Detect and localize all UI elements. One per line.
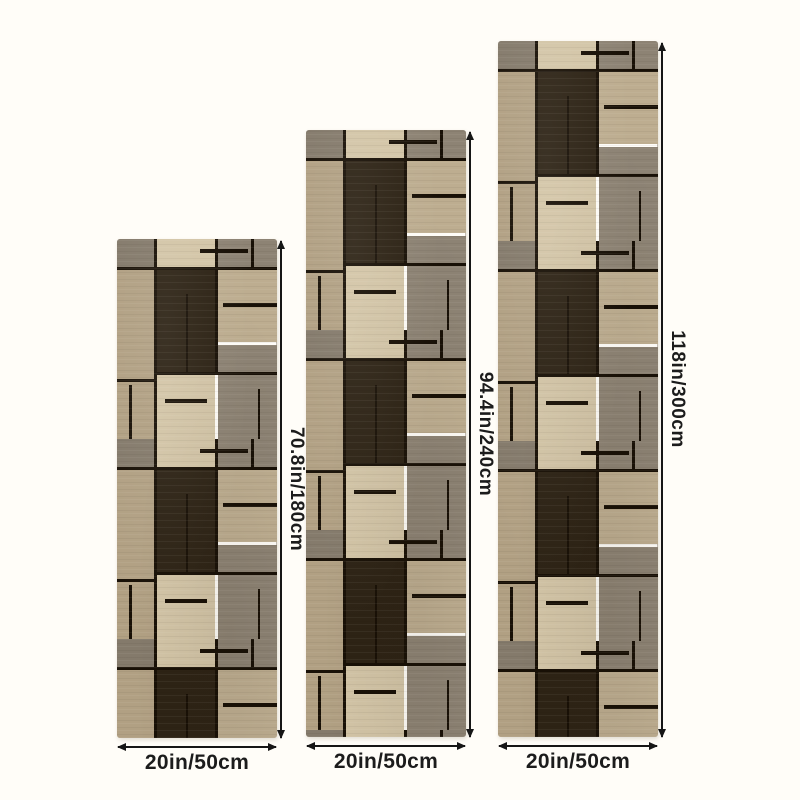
rug-large-height-label: 118in/300cm	[666, 330, 688, 447]
rug-pattern-line	[251, 239, 253, 267]
rug-pattern-line	[186, 294, 188, 374]
width-dimension-line	[499, 745, 657, 747]
rug-pattern-line	[440, 730, 442, 737]
rug-pattern-line	[404, 130, 407, 266]
rug-pattern-block	[306, 530, 343, 558]
rug-pattern-line	[215, 639, 218, 738]
rug-pattern-block	[599, 547, 658, 641]
rug-pattern-block	[306, 161, 343, 330]
rug-pattern-line	[498, 581, 535, 584]
rug-pattern-line	[632, 41, 634, 69]
rug-pattern-line	[318, 476, 321, 530]
arrowhead-left-icon	[117, 743, 126, 751]
rug-pattern-block	[407, 236, 466, 330]
rug-pattern-line	[404, 330, 407, 466]
rug-group-large: 118in/300cm 20in/50cm	[498, 41, 658, 737]
rug-pattern-line	[318, 676, 321, 730]
rug-pattern-line	[604, 305, 658, 309]
rug-pattern-line	[258, 589, 261, 639]
rug-pattern-line	[535, 641, 538, 737]
rug-pattern-line	[154, 439, 157, 639]
rug-pattern-line	[604, 705, 658, 709]
rug-pattern-line	[200, 249, 248, 253]
rug-pattern-block	[498, 241, 535, 269]
rug-pattern-line	[567, 96, 569, 176]
rug-small-width-label: 20in/50cm	[117, 751, 277, 775]
rug-pattern-line	[404, 730, 407, 737]
rug-pattern-line	[186, 694, 188, 738]
rug-pattern-line	[129, 585, 132, 639]
arrowhead-down-icon	[658, 729, 666, 738]
rug-pattern-line	[632, 641, 634, 669]
rug-medium-height-dimension: 94.4in/240cm	[466, 130, 496, 737]
rug-pattern-block	[117, 639, 154, 667]
rug-pattern-line	[447, 680, 450, 730]
rug-large-height-dimension: 118in/300cm	[658, 41, 688, 737]
rug-pattern-line	[318, 276, 321, 330]
rug-pattern-line	[343, 530, 346, 730]
rug-pattern-line	[389, 140, 437, 144]
rug-pattern-line	[375, 185, 377, 265]
arrowhead-down-icon	[277, 730, 285, 739]
rug-pattern-line	[581, 251, 629, 255]
rug-pattern-line	[117, 579, 154, 582]
rug-group-medium: 94.4in/240cm 20in/50cm	[306, 130, 466, 737]
arrowhead-right-icon	[649, 742, 658, 750]
rug-pattern-line	[447, 480, 450, 530]
rug-pattern-block	[538, 241, 596, 269]
rug-pattern-line	[306, 270, 343, 273]
rug-pattern-line	[567, 496, 569, 576]
rug-pattern-line	[510, 187, 513, 241]
rug-pattern-block	[157, 375, 215, 439]
rug-pattern-line	[165, 599, 207, 603]
rug-pattern-block	[218, 239, 277, 267]
rug-pattern-line	[412, 194, 466, 198]
rug-pattern-line	[567, 696, 569, 737]
height-dimension-line	[280, 241, 282, 738]
rug-pattern-block	[306, 361, 343, 530]
product-dimension-image: 70.8in/180cm 20in/50cm 94.4in/240cm 20in	[0, 0, 800, 800]
rug-pattern-line	[440, 530, 442, 558]
rug-pattern-line	[510, 387, 513, 441]
width-dimension-line	[118, 746, 276, 748]
rug-pattern-line	[251, 639, 253, 667]
rug-pattern-line	[154, 639, 157, 738]
rug-medium-photo	[306, 130, 466, 737]
rug-pattern-block	[498, 672, 535, 737]
rug-pattern-line	[639, 391, 642, 441]
rug-pattern-line	[343, 730, 346, 737]
rug-pattern-block	[346, 330, 404, 358]
rug-pattern-line	[389, 540, 437, 544]
rug-pattern-block	[117, 239, 154, 267]
rug-pattern-block	[117, 439, 154, 467]
rug-pattern-block	[218, 545, 277, 639]
rug-pattern-block	[538, 177, 596, 241]
rug-pattern-line	[223, 303, 277, 307]
rug-pattern-line	[596, 41, 599, 177]
rug-pattern-line	[510, 587, 513, 641]
rug-pattern-block	[538, 577, 596, 641]
rug-pattern-block	[599, 41, 658, 69]
rug-pattern-line	[354, 490, 396, 494]
rug-pattern-line	[223, 703, 277, 707]
rug-pattern-line	[306, 470, 343, 473]
rug-pattern-line	[215, 239, 218, 375]
height-dimension-line	[469, 132, 471, 737]
rug-pattern-block	[306, 561, 343, 730]
rug-large-photo	[498, 41, 658, 737]
rug-pattern-line	[251, 439, 253, 467]
rug-pattern-block	[346, 130, 404, 158]
rug-pattern-block	[538, 377, 596, 441]
rug-pattern-line	[604, 505, 658, 509]
rug-small-height-label: 70.8in/180cm	[285, 426, 307, 550]
arrowhead-down-icon	[466, 729, 474, 738]
rug-pattern-line	[375, 385, 377, 465]
rug-pattern-line	[567, 296, 569, 376]
rug-pattern-block	[407, 436, 466, 530]
rug-pattern-block	[407, 330, 466, 358]
rug-pattern-line	[354, 290, 396, 294]
rug-pattern-line	[535, 241, 538, 441]
rug-pattern-line	[632, 441, 634, 469]
rug-medium-height-label: 94.4in/240cm	[474, 371, 496, 495]
rug-pattern-block	[157, 239, 215, 267]
arrowhead-up-icon	[277, 240, 285, 249]
rug-pattern-line	[440, 130, 442, 158]
rug-pattern-block	[599, 347, 658, 441]
rug-pattern-block	[498, 72, 535, 241]
rug-pattern-block	[538, 41, 596, 69]
rug-pattern-line	[154, 239, 157, 439]
rug-pattern-line	[596, 441, 599, 577]
rug-pattern-block	[346, 730, 404, 737]
rug-pattern-block	[407, 530, 466, 558]
rug-pattern-line	[581, 651, 629, 655]
rug-pattern-line	[440, 330, 442, 358]
rug-pattern-line	[447, 280, 450, 330]
rug-pattern-line	[546, 601, 588, 605]
rug-pattern-line	[389, 340, 437, 344]
rug-pattern-block	[599, 641, 658, 669]
rug-pattern-block	[407, 730, 466, 737]
rug-pattern-block	[498, 272, 535, 441]
rug-pattern-line	[498, 181, 535, 184]
rug-pattern-line	[639, 191, 642, 241]
rug-pattern-block	[498, 41, 535, 69]
rug-pattern-line	[632, 241, 634, 269]
rug-pattern-block	[306, 730, 343, 737]
rug-pattern-line	[581, 451, 629, 455]
rug-pattern-line	[546, 401, 588, 405]
rug-pattern-line	[535, 41, 538, 241]
rug-large-width-label: 20in/50cm	[498, 750, 658, 774]
rug-pattern-line	[581, 51, 629, 55]
rug-medium-width-label: 20in/50cm	[306, 750, 466, 774]
rug-small-photo	[117, 239, 277, 738]
rug-pattern-block	[306, 130, 343, 158]
rug-pattern-block	[346, 466, 404, 530]
rug-pattern-block	[538, 641, 596, 669]
rug-pattern-line	[343, 330, 346, 530]
rug-small-height-dimension: 70.8in/180cm	[277, 239, 307, 738]
rug-pattern-line	[375, 585, 377, 665]
rug-pattern-block	[346, 266, 404, 330]
rug-pattern-block	[306, 330, 343, 358]
arrowhead-left-icon	[306, 742, 315, 750]
rug-pattern-line	[200, 649, 248, 653]
rug-pattern-block	[218, 639, 277, 667]
rug-pattern-block	[599, 441, 658, 469]
rug-pattern-line	[215, 439, 218, 575]
arrowhead-right-icon	[268, 743, 277, 751]
rug-pattern-line	[498, 381, 535, 384]
rug-pattern-line	[129, 385, 132, 439]
rug-pattern-block	[498, 441, 535, 469]
rug-pattern-block	[498, 641, 535, 669]
arrowhead-up-icon	[658, 42, 666, 51]
rug-pattern-block	[599, 147, 658, 241]
rug-pattern-line	[404, 530, 407, 666]
rug-pattern-block	[117, 670, 154, 738]
rug-pattern-line	[546, 201, 588, 205]
rug-pattern-line	[639, 591, 642, 641]
rug-pattern-block	[157, 639, 215, 667]
rug-pattern-block	[407, 130, 466, 158]
rug-pattern-line	[186, 494, 188, 574]
rug-pattern-block	[157, 575, 215, 639]
rug-pattern-line	[535, 441, 538, 641]
rug-pattern-block	[346, 666, 404, 730]
arrowhead-right-icon	[457, 742, 466, 750]
rug-pattern-line	[258, 389, 261, 439]
arrowhead-up-icon	[466, 131, 474, 140]
rug-pattern-line	[412, 594, 466, 598]
rug-pattern-line	[200, 449, 248, 453]
rug-pattern-line	[354, 690, 396, 694]
height-dimension-line	[661, 43, 663, 737]
rug-pattern-line	[604, 105, 658, 109]
rug-pattern-block	[117, 470, 154, 639]
width-dimension-line	[307, 745, 465, 747]
rug-pattern-block	[599, 241, 658, 269]
rug-pattern-line	[596, 641, 599, 737]
rug-pattern-block	[498, 472, 535, 641]
rug-pattern-line	[223, 503, 277, 507]
rug-pattern-block	[117, 270, 154, 439]
rug-pattern-block	[218, 345, 277, 439]
rug-pattern-block	[407, 636, 466, 730]
rug-pattern-line	[596, 241, 599, 377]
rug-pattern-line	[306, 670, 343, 673]
rug-pattern-block	[218, 439, 277, 467]
rug-pattern-line	[412, 394, 466, 398]
rug-pattern-block	[157, 439, 215, 467]
rug-pattern-block	[538, 441, 596, 469]
rug-pattern-block	[346, 530, 404, 558]
rug-pattern-line	[165, 399, 207, 403]
rug-pattern-line	[343, 130, 346, 330]
arrowhead-left-icon	[498, 742, 507, 750]
rug-pattern-line	[117, 379, 154, 382]
rug-group-small: 70.8in/180cm 20in/50cm	[117, 239, 277, 738]
